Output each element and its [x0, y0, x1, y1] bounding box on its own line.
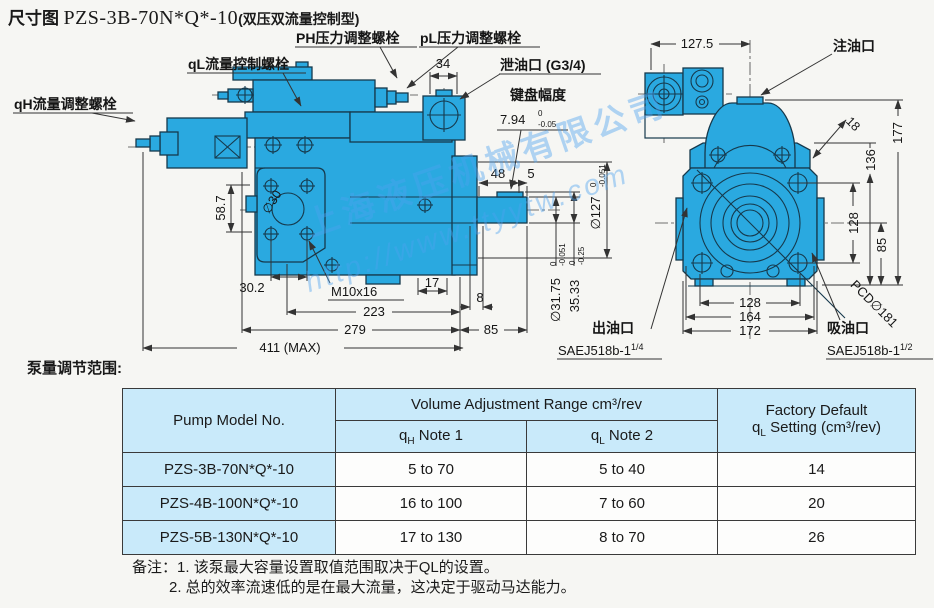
dim-172: 172: [739, 323, 761, 338]
volume-adjustment-table: Pump Model No. Volume Adjustment Range c…: [122, 388, 916, 555]
dim-1275: 127.5: [681, 36, 714, 51]
dim-279: 279: [344, 322, 366, 337]
remarks: 备注：1. 该泵最大容量设置取值范围取决于QL的设置。 2. 总的效率流速低的是…: [132, 558, 576, 598]
col-header-qh: qH Note 1: [336, 421, 527, 453]
front-view: 127.5 注油口 18 177 136 12: [557, 36, 933, 359]
table-row: PZS-4B-100N*Q*-10 16 to 100 7 to 60 20: [123, 487, 916, 521]
dimension-drawing: PH压力调整螺栓 pL压力调整螺栓 qL流量控制螺栓 qH流量调整螺栓 泄油口 …: [0, 0, 934, 360]
svg-text:35.33: 35.33: [567, 280, 582, 313]
dim-34: 34: [436, 56, 450, 71]
remark-line-2: 2. 总的效率流速低的是在最大流量，这决定于驱动马达能力。: [132, 578, 576, 598]
svg-text:0: 0: [568, 260, 577, 265]
col-header-factory: Factory Default qL Setting (cm³/rev): [718, 389, 916, 453]
valve-bridge: [245, 112, 350, 138]
left-port-tab: [676, 198, 683, 260]
table-row: PZS-5B-130N*Q*-10 17 to 130 8 to 70 26: [123, 521, 916, 555]
pilot-valve-body: [253, 80, 375, 112]
dim-17: 17: [425, 275, 439, 290]
pl-screw-label: pL压力调整螺栓: [420, 30, 521, 46]
cell-qh: 5 to 70: [336, 453, 527, 487]
dim-3533: 35.33 0 -0.25: [567, 246, 586, 312]
page-title: 尺寸图 PZS-3B-70N*Q*-10(双压双流量控制型): [8, 4, 359, 30]
dim-128-bottom: 128: [739, 295, 761, 310]
dim-587: 58.7: [213, 195, 228, 220]
dim-411: 411 (MAX): [259, 340, 320, 355]
cell-model: PZS-5B-130N*Q*-10: [123, 521, 336, 555]
dim-164: 164: [739, 309, 761, 324]
svg-text:-0.051: -0.051: [558, 243, 567, 266]
flow-control-cylinder: [167, 118, 247, 168]
cell-ql: 8 to 70: [527, 521, 718, 555]
dim-136: 136: [863, 149, 878, 171]
drain-port-label: 泄油口 (G3/4): [500, 57, 586, 73]
dim-18: 18: [843, 114, 863, 134]
col-header-range: Volume Adjustment Range cm³/rev: [336, 389, 718, 421]
suction-label: 吸油口: [827, 320, 869, 336]
key-width-value: 7.94: [500, 112, 525, 127]
pl-screw-body: [375, 88, 387, 107]
svg-text:0: 0: [538, 109, 543, 118]
title-suffix: (双压双流量控制型): [238, 11, 359, 27]
svg-text:0: 0: [549, 261, 558, 266]
dim-128-right: 128: [846, 212, 861, 234]
svg-text:-0.25: -0.25: [577, 246, 586, 265]
page: 尺寸图 PZS-3B-70N*Q*-10(双压双流量控制型): [0, 0, 934, 608]
cell-qh: 16 to 100: [336, 487, 527, 521]
dim-177: 177: [890, 122, 905, 144]
dim-85-right: 85: [874, 238, 889, 252]
side-tab: [246, 196, 257, 212]
cell-default: 26: [718, 521, 916, 555]
outlet-spec: SAEJ518b-11/4: [558, 342, 644, 358]
suction-spec: SAEJ518b-11/2: [827, 342, 913, 358]
outlet-label: 出油口: [592, 320, 634, 336]
foot-right: [787, 279, 805, 286]
dim-85-left: 85: [484, 322, 498, 337]
cell-model: PZS-4B-100N*Q*-10: [123, 487, 336, 521]
fill-port-label: 注油口: [833, 38, 875, 54]
right-port-tab: [817, 198, 824, 260]
cell-qh: 17 to 130: [336, 521, 527, 555]
qh-screw-rod: [136, 139, 150, 147]
cell-ql: 7 to 60: [527, 487, 718, 521]
cell-default: 20: [718, 487, 916, 521]
col-header-ql: qL Note 2: [527, 421, 718, 453]
title-model: PZS-3B-70N*Q*-10: [63, 7, 238, 29]
ph-screw-label: PH压力调整螺栓: [296, 30, 399, 46]
dim-dia3175: ∅31.75 0 -0.051: [548, 243, 567, 322]
qh-screw-nut: [160, 132, 178, 155]
cell-default: 14: [718, 453, 916, 487]
remark-line-1: 备注：1. 该泵最大容量设置取值范围取决于QL的设置。: [132, 558, 576, 578]
qh-screw-label: qH流量调整螺栓: [14, 96, 117, 112]
dim-302: 30.2: [239, 280, 264, 295]
foot-left: [695, 279, 713, 286]
key-width-label: 键盘幅度: [509, 87, 567, 103]
cell-model: PZS-3B-70N*Q*-10: [123, 453, 336, 487]
svg-text:∅31.75: ∅31.75: [548, 278, 563, 322]
section-label: 泵量调节范围:: [27, 357, 122, 378]
title-prefix: 尺寸图: [8, 9, 59, 28]
fill-port-boss: [737, 97, 763, 104]
col-header-model: Pump Model No.: [123, 389, 336, 453]
dim-223: 223: [363, 304, 385, 319]
table-row: PZS-3B-70N*Q*-10 5 to 70 5 to 40 14: [123, 453, 916, 487]
cell-ql: 5 to 40: [527, 453, 718, 487]
ql-screw-label: qL流量控制螺栓: [188, 56, 289, 72]
